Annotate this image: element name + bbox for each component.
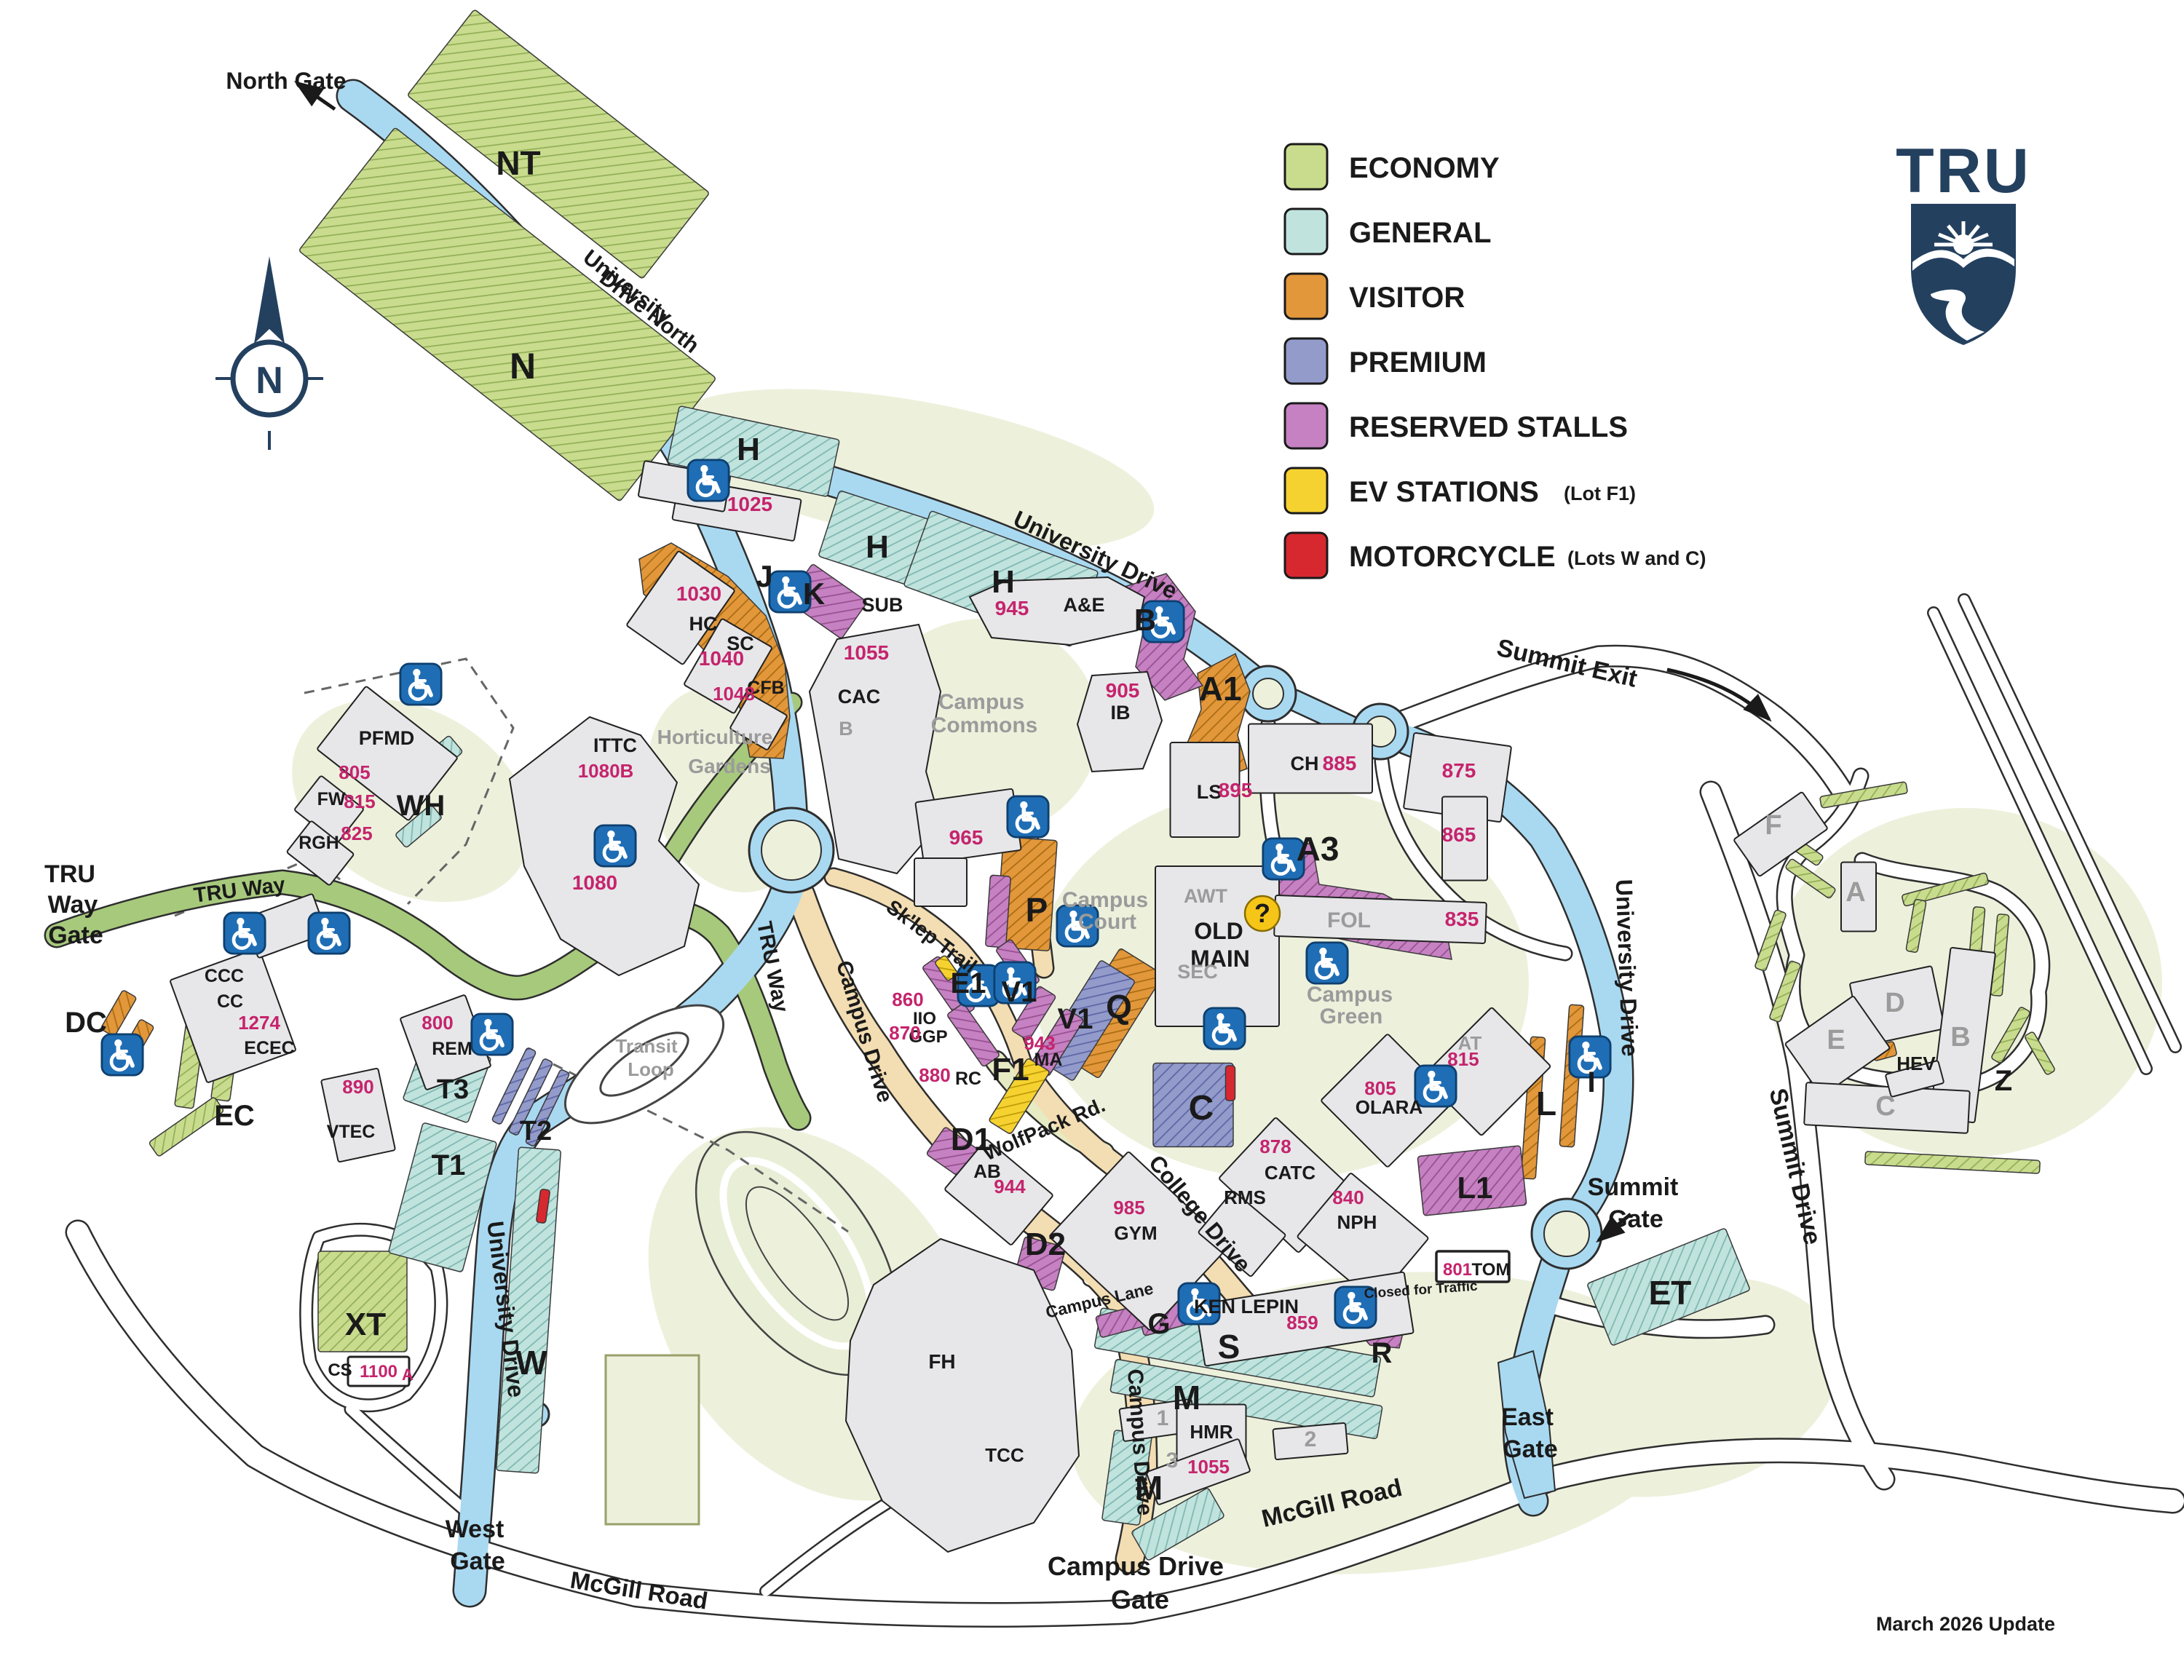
label-campus-green-1: Campus — [1307, 983, 1393, 1007]
label-lot-n: N — [510, 346, 536, 387]
label-bld-awt: AWT — [1184, 885, 1227, 907]
label-num-1030: 1030 — [676, 582, 721, 605]
label-bld-rc: RC — [955, 1069, 981, 1089]
label-march-update: March 2026 Update — [1876, 1613, 2055, 1635]
label-num-1080: 1080 — [572, 871, 617, 894]
legend-swatch-1 — [1285, 209, 1327, 254]
label-num-1048: 1048 — [713, 683, 755, 705]
accessibility-icon — [102, 1034, 143, 1075]
label-horticulture-1: Horticulture — [657, 726, 773, 748]
label-bld-sec: SEC — [1177, 961, 1218, 983]
label-num-878: 878 — [1259, 1136, 1291, 1157]
label-lot-z: Z — [1995, 1065, 2012, 1097]
building-b-hl2 — [914, 858, 967, 906]
legend-swatch-5 — [1285, 468, 1327, 513]
legend-label-5: EV STATIONS — [1349, 476, 1539, 508]
legend-swatch-0 — [1285, 144, 1327, 189]
label-bld-olara: OLARA — [1356, 1096, 1423, 1118]
label-lot-w: W — [515, 1344, 547, 1382]
accessibility-icon — [1307, 943, 1348, 983]
label-campus-commons-2: Commons — [931, 713, 1038, 737]
label-campus-drive-gate-1: Campus Drive — [1048, 1551, 1224, 1581]
label-lot-i: I — [1587, 1066, 1595, 1098]
label-bld-vtec: VTEC — [327, 1122, 376, 1142]
label-campus-drive-gate-2: Gate — [1111, 1585, 1169, 1614]
label-summit-gate-1: Summit — [1588, 1173, 1679, 1201]
label-num-815-fw: 815 — [344, 791, 375, 812]
label-num-835: 835 — [1445, 908, 1479, 930]
label-lot-wh: WH — [397, 790, 446, 822]
label-num-944: 944 — [994, 1176, 1026, 1197]
label-res-a: A — [1845, 877, 1865, 908]
label-bld-cac: CAC — [838, 686, 881, 708]
label-bld-rms: RMS — [1224, 1186, 1266, 1208]
roundabout-island — [1544, 1211, 1589, 1256]
label-lot-m-1: M — [1173, 1379, 1200, 1416]
label-bld-catc: CATC — [1265, 1162, 1316, 1184]
label-res-e: E — [1827, 1025, 1845, 1055]
label-tru-way-1: TRU Way — [192, 873, 286, 907]
legend-label-2: VISITOR — [1349, 282, 1465, 314]
label-bld-nph: NPH — [1337, 1211, 1377, 1233]
accessibility-icon — [1008, 796, 1048, 837]
legend-label-3: PREMIUM — [1349, 346, 1487, 379]
label-lot-h-3: H — [992, 564, 1015, 600]
label-lot-h-2: H — [866, 529, 889, 565]
label-res-3: 3 — [1166, 1449, 1179, 1473]
label-num-805-olara: 805 — [1364, 1077, 1396, 1099]
label-bld-b-gray: B — [839, 718, 853, 740]
label-campus-drive-1: Campus Drive — [831, 958, 898, 1106]
label-lot-f1: F1 — [992, 1052, 1029, 1087]
legend-note-5: (Lot F1) — [1564, 483, 1636, 504]
legend-label-0: ECONOMY — [1349, 152, 1500, 184]
label-lot-d2: D2 — [1025, 1227, 1066, 1262]
label-bld-tcc: TCC — [985, 1444, 1024, 1466]
label-lot-t2: T2 — [520, 1116, 552, 1146]
label-res-d: D — [1885, 988, 1904, 1018]
label-num-865: 865 — [1442, 823, 1476, 846]
label-lot-l: L — [1536, 1085, 1556, 1122]
label-num-840: 840 — [1332, 1186, 1364, 1208]
label-bld-fw: FW — [317, 789, 346, 809]
label-num-943: 943 — [1024, 1032, 1055, 1054]
label-bld-kenlepin: KEN LEPIN — [1194, 1296, 1299, 1318]
label-num-870: 870 — [889, 1022, 920, 1044]
label-num-1055-cac: 1055 — [844, 641, 889, 664]
lot-P-reserved — [986, 875, 1011, 948]
label-bld-hev: HEV — [1896, 1053, 1936, 1074]
label-num-880: 880 — [919, 1064, 950, 1086]
label-res-b: B — [1950, 1022, 1970, 1053]
label-num-1100: 1100 — [360, 1362, 397, 1382]
label-num-1040: 1040 — [699, 647, 744, 670]
label-num-801: 801 — [1443, 1260, 1472, 1280]
label-num-1274: 1274 — [238, 1012, 280, 1034]
label-bld-fh: FH — [928, 1350, 955, 1373]
label-bld-ecec: ECEC — [244, 1038, 294, 1058]
label-bld-gym: GYM — [1114, 1222, 1157, 1244]
label-east-gate-1: East — [1501, 1403, 1554, 1431]
label-num-1025: 1025 — [727, 493, 772, 515]
tru-logo: TRU — [1896, 136, 2031, 345]
label-bld-cc: CC — [217, 991, 243, 1012]
label-num-965: 965 — [949, 826, 984, 849]
label-lot-a3: A3 — [1297, 830, 1340, 868]
label-num-885: 885 — [1323, 752, 1357, 774]
legend-label-6: MOTORCYCLE — [1349, 541, 1556, 573]
label-horticulture-2: Gardens — [688, 755, 771, 777]
label-num-895: 895 — [1219, 779, 1253, 801]
label-tru-way-gate-2: Way — [48, 891, 98, 919]
label-transit-loop-2: Loop — [628, 1058, 674, 1080]
label-bld-ib: IB — [1111, 702, 1131, 724]
legend-note-6: (Lots W and C) — [1567, 547, 1706, 569]
label-lot-d1: D1 — [951, 1122, 992, 1157]
label-num-945: 945 — [995, 597, 1029, 619]
label-lot-a1: A1 — [1199, 670, 1242, 708]
accessibility-icon — [400, 664, 441, 705]
label-res-c: C — [1875, 1091, 1895, 1122]
label-num-805-pfmd: 805 — [339, 761, 370, 783]
accessibility-icon — [595, 825, 636, 866]
label-num-815-at: 815 — [1447, 1048, 1479, 1070]
label-campus-court-1: Campus — [1062, 888, 1148, 912]
legend-label-1: GENERAL — [1349, 217, 1492, 249]
label-lot-q: Q — [1106, 988, 1132, 1026]
label-num-890: 890 — [342, 1076, 373, 1098]
lot-C-moto — [1226, 1066, 1235, 1101]
label-bld-hmr: HMR — [1190, 1421, 1233, 1443]
label-lot-nt: NT — [496, 144, 540, 182]
label-lot-l1: L1 — [1457, 1170, 1492, 1205]
ground-area — [606, 1355, 699, 1524]
label-bld-pfmd: PFMD — [359, 727, 415, 749]
legend-swatch-3 — [1285, 338, 1327, 384]
label-bld-sub: SUB — [861, 594, 903, 616]
label-bld-rgh: RGH — [298, 833, 339, 853]
label-bld-ittc: ITTC — [593, 734, 637, 756]
label-lot-c: C — [1189, 1089, 1214, 1128]
label-summit-gate-2: Gate — [1608, 1205, 1663, 1233]
label-lot-m-2: M — [1135, 1469, 1163, 1507]
label-transit-loop-1: Transit — [615, 1035, 678, 1057]
label-num-905: 905 — [1106, 679, 1140, 702]
label-bld-ae: A&E — [1063, 594, 1104, 616]
label-bld-hc: HC — [689, 613, 718, 635]
label-west-gate-1: West — [446, 1515, 505, 1543]
information-icon-glyph: ? — [1254, 898, 1270, 928]
label-num-1055-hmr: 1055 — [1187, 1456, 1230, 1478]
label-lot-k: K — [803, 576, 825, 611]
label-campus-court-2: Court — [1078, 910, 1136, 934]
label-campus-green-2: Green — [1320, 1005, 1383, 1029]
label-num-a-cs: A — [402, 1366, 414, 1384]
label-lot-v1-2: V1 — [1058, 1003, 1093, 1035]
label-lot-e1: E1 — [951, 967, 986, 999]
label-lot-r: R — [1372, 1337, 1393, 1369]
legend-swatch-4 — [1285, 403, 1327, 448]
accessibility-icon — [472, 1014, 513, 1055]
label-num-800: 800 — [422, 1012, 453, 1034]
label-num-859: 859 — [1286, 1312, 1318, 1334]
label-lot-p: P — [1026, 891, 1048, 929]
label-num-985: 985 — [1113, 1197, 1144, 1219]
label-bld-ccc: CCC — [205, 966, 244, 986]
label-west-gate-2: Gate — [450, 1548, 505, 1575]
legend: ECONOMYGENERALVISITORPREMIUMRESERVED STA… — [1285, 144, 1706, 578]
label-lot-j: J — [756, 559, 772, 593]
legend-label-4: RESERVED STALLS — [1349, 411, 1628, 443]
compass-needle-icon — [254, 256, 285, 344]
label-res-1: 1 — [1157, 1406, 1169, 1430]
label-east-gate-2: Gate — [1503, 1435, 1558, 1463]
label-bld-oldmain-1: OLD — [1194, 918, 1243, 944]
label-lot-ec: EC — [214, 1100, 255, 1132]
label-bld-cs: CS — [328, 1360, 352, 1380]
roundabout-island — [1253, 678, 1283, 709]
accessibility-icon — [224, 913, 265, 954]
legend-swatch-6 — [1285, 533, 1327, 578]
label-lot-t1: T1 — [432, 1149, 466, 1181]
label-bld-fol: FOL — [1327, 908, 1371, 932]
label-lot-xt: XT — [345, 1307, 386, 1342]
label-tru-way-gate-1: TRU — [44, 860, 95, 888]
accessibility-icon — [309, 913, 349, 954]
campus-parking-map: ? North GateUniversityDrive NorthUnivers… — [0, 0, 2184, 1680]
label-bld-rem: REM — [432, 1039, 472, 1059]
accessibility-icon — [1204, 1008, 1245, 1049]
label-res-2: 2 — [1305, 1427, 1317, 1451]
roundabout-island — [761, 820, 821, 880]
label-lot-v1-1: V1 — [1002, 976, 1037, 1008]
label-lot-g: G — [1147, 1308, 1170, 1340]
label-res-f: F — [1765, 810, 1781, 841]
compass-rose: N — [215, 256, 323, 450]
label-lot-t3: T3 — [437, 1074, 469, 1105]
compass-letter: N — [256, 360, 283, 402]
label-lot-et: ET — [1649, 1274, 1692, 1312]
tru-logo-text: TRU — [1896, 136, 2031, 206]
label-tru-way-gate-3: Gate — [48, 922, 103, 949]
label-num-825: 825 — [341, 823, 372, 844]
label-lot-dc: DC — [65, 1007, 107, 1039]
label-north-gate: North Gate — [226, 68, 346, 94]
label-lot-b: B — [1134, 603, 1156, 637]
legend-swatch-2 — [1285, 274, 1327, 319]
label-bld-tom: TOM — [1472, 1260, 1511, 1280]
label-lot-h-1: H — [737, 432, 760, 467]
label-num-875: 875 — [1442, 759, 1476, 782]
label-lot-s: S — [1218, 1328, 1241, 1366]
accessibility-icon — [688, 460, 729, 501]
label-num-860: 860 — [892, 988, 923, 1010]
label-num-1080b: 1080B — [578, 760, 634, 782]
label-campus-commons-1: Campus — [938, 690, 1024, 714]
label-bld-ch: CH — [1291, 753, 1319, 774]
